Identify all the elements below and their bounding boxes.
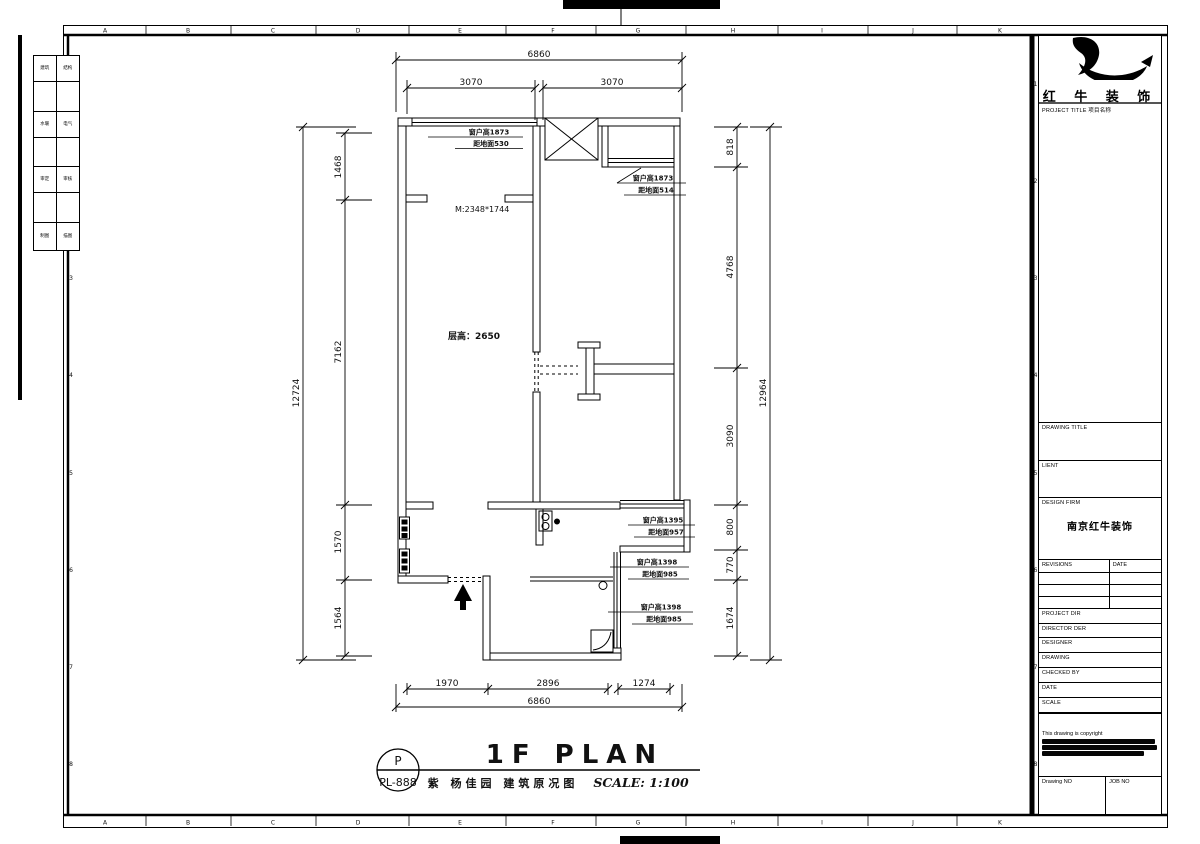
date-row: DATE <box>1039 683 1161 698</box>
drawing-row: DRAWING <box>1039 653 1161 668</box>
row-label: PROJECT DIR <box>1039 609 1161 617</box>
entry-arrow <box>454 584 472 610</box>
strip-cell <box>34 138 57 167</box>
row-label: DATE <box>1039 683 1161 691</box>
date-col-label: DATE <box>1110 560 1161 572</box>
strip-cell <box>34 82 57 111</box>
window-label: 距地面985 <box>642 570 678 579</box>
dim-label: 770 <box>726 556 736 573</box>
dim-label: 2896 <box>537 679 560 689</box>
shaft-box <box>545 118 598 160</box>
strip-cell: 建筑 <box>34 56 57 81</box>
grid-letter: D <box>356 820 361 827</box>
row-label: CHECKED BY <box>1039 668 1161 676</box>
dim-label: 6860 <box>528 697 551 707</box>
dim-label: 818 <box>726 138 736 155</box>
dim-label: 1570 <box>334 530 344 553</box>
grid-number: 3 <box>69 275 73 282</box>
row-label: DRAWING <box>1039 653 1161 661</box>
plan-title-footer: P PL-888 1F PLAN 紫 杨佳园 建筑原况图 SCALE: 1:10… <box>377 740 700 791</box>
signature-strip: 建筑结构 水暖电气 审定审核 制图描图 <box>33 55 80 251</box>
grid-letter: A <box>103 820 108 827</box>
strip-cell: 制图 <box>34 223 57 250</box>
bull-logo-icon <box>1045 36 1155 80</box>
drawing-title-section: DRAWING TITLE <box>1039 423 1161 461</box>
opening-label: M:2348*1744 <box>455 205 509 214</box>
logo-area: 红 牛 装 饰 <box>1039 36 1161 104</box>
sheet-number: PL-888 <box>379 776 417 789</box>
pipe-circle <box>599 582 607 590</box>
strip-cell: 电气 <box>57 112 80 137</box>
copyright-fineprint <box>1042 739 1155 744</box>
copyright-text: This drawing is copyright <box>1042 731 1158 737</box>
job-no-label: JOB NO <box>1106 777 1161 814</box>
grid-number: 7 <box>1034 664 1038 671</box>
grid-letter: I <box>821 820 823 827</box>
dim-label: 12964 <box>759 378 769 407</box>
dim-label: 6860 <box>528 50 551 60</box>
window-label: 窗户高1398 <box>637 558 678 567</box>
project-dir-row: PROJECT DIR <box>1039 609 1161 624</box>
grid-letter: A <box>103 28 108 35</box>
counter-line <box>530 577 613 581</box>
grid-number: 4 <box>69 372 73 379</box>
dimension-labels: 6860 3070 3070 1970 2896 1274 6860 1468 … <box>292 50 769 707</box>
dim-label: 800 <box>726 518 736 535</box>
window-upper-right <box>608 159 674 168</box>
strip-cell <box>57 138 80 167</box>
door-opening-dashed <box>448 352 578 582</box>
dim-label: 1468 <box>334 155 344 178</box>
grid-letter: G <box>636 28 641 35</box>
plan-title: 1F PLAN <box>486 740 664 770</box>
dim-label: 1674 <box>726 606 736 629</box>
grid-letter: I <box>821 28 823 35</box>
bay-window <box>620 501 684 509</box>
window-top <box>412 118 537 126</box>
grid-number: 6 <box>1034 567 1038 574</box>
title-block: 红 牛 装 饰 PROJECT TITLE 项目名称 DRAWING TITLE… <box>1038 35 1162 815</box>
copyright-section: This drawing is copyright <box>1039 713 1161 777</box>
strip-cell: 描图 <box>57 223 80 250</box>
floor-drain <box>555 519 560 524</box>
grid-letter: G <box>636 820 641 827</box>
strip-cell: 审核 <box>57 167 80 192</box>
strip-cell <box>34 193 57 222</box>
dim-label: 1274 <box>633 679 656 689</box>
window-label: 距地面514 <box>638 186 674 195</box>
checked-by-row: CHECKED BY <box>1039 668 1161 683</box>
client-section: LIENT <box>1039 461 1161 498</box>
grid-number: 6 <box>69 567 73 574</box>
dim-label: 1564 <box>334 606 344 629</box>
grid-letter: H <box>731 28 736 35</box>
grid-letter: K <box>998 28 1003 35</box>
grid-number: 3 <box>1034 275 1038 282</box>
row-label: SCALE <box>1039 698 1161 706</box>
grid-letter: B <box>186 820 190 827</box>
revision-row <box>1039 597 1161 608</box>
radiator <box>400 549 410 573</box>
grid-number: 4 <box>1034 372 1038 379</box>
copyright-fineprint <box>1042 751 1144 756</box>
drawing-no-label: Drawing NO <box>1039 777 1106 814</box>
grid-letter: H <box>731 820 736 827</box>
plan-subtitle: 紫 杨佳园 建筑原况图 <box>428 776 579 790</box>
plan-scale: SCALE: 1:100 <box>593 775 689 790</box>
radiator <box>400 517 410 539</box>
strip-cell: 结构 <box>57 56 80 81</box>
window-label: 窗户高1395 <box>643 516 684 525</box>
grid-number: 2 <box>1034 178 1038 185</box>
grid-number: 8 <box>1034 761 1038 768</box>
number-section: Drawing NO JOB NO <box>1039 777 1161 814</box>
grid-letter: C <box>271 28 275 35</box>
project-title-section: PROJECT TITLE 项目名称 <box>1039 104 1161 423</box>
window-lower-right <box>614 552 621 648</box>
strip-cell: 审定 <box>34 167 57 192</box>
dim-label: 1970 <box>436 679 459 689</box>
fold-marks <box>18 0 720 844</box>
row-label: DESIGNER <box>1039 638 1161 646</box>
grid-letter: K <box>998 820 1003 827</box>
dim-label: 7162 <box>334 341 344 364</box>
grid-number: 1 <box>1034 81 1038 88</box>
window-label: 窗户高1873 <box>633 174 674 183</box>
grid-letter: E <box>458 28 462 35</box>
grid-letter: B <box>186 28 190 35</box>
window-label: 距地面985 <box>646 615 682 624</box>
window-label: 窗户高1398 <box>641 603 682 612</box>
grid-letter: J <box>911 28 914 35</box>
design-firm-section: DESIGN FIRM 南京红牛装饰 <box>1039 498 1161 560</box>
dim-label: 4768 <box>726 255 736 278</box>
grid-letter: F <box>551 28 555 35</box>
client-label: LIENT <box>1039 461 1161 469</box>
drawing-title-label: DRAWING TITLE <box>1039 423 1161 431</box>
grid-letter: C <box>271 820 275 827</box>
dim-label: 12724 <box>292 378 302 407</box>
floor-height-label: 层高：2650 <box>448 330 500 342</box>
scale-row: SCALE <box>1039 698 1161 713</box>
revisions-table: REVISIONS DATE <box>1039 560 1161 609</box>
grid-number: 5 <box>69 470 73 477</box>
strip-cell: 水暖 <box>34 112 57 137</box>
director-row: DIRECTOR DER <box>1039 624 1161 639</box>
strip-cell <box>57 82 80 111</box>
copyright-fineprint <box>1042 745 1157 750</box>
window-label: 距地面530 <box>473 139 509 148</box>
project-title-label: PROJECT TITLE 项目名称 <box>1039 104 1161 114</box>
window-label: 距地面957 <box>648 528 684 537</box>
grid-number: 8 <box>69 761 73 768</box>
grid-letter: F <box>551 820 555 827</box>
row-label: DIRECTOR DER <box>1039 624 1161 632</box>
strip-cell <box>57 193 80 222</box>
corner-basin <box>591 630 613 652</box>
grid-number: 7 <box>69 664 73 671</box>
design-firm-name: 南京红牛装饰 <box>1039 518 1161 533</box>
dim-label: 3090 <box>726 424 736 447</box>
drawing-sheet: A B C D E F G H I J K A B C D E F G H I … <box>0 0 1200 844</box>
revisions-label: REVISIONS <box>1039 560 1110 572</box>
window-label: 窗户高1873 <box>469 128 510 137</box>
design-firm-label: DESIGN FIRM <box>1039 498 1161 506</box>
dim-label: 3070 <box>601 78 624 88</box>
grid-number: 5 <box>1034 470 1038 477</box>
sheet-letter: P <box>394 754 401 768</box>
grid-letter: J <box>911 820 914 827</box>
brand-name: 红 牛 装 饰 <box>1039 86 1161 105</box>
revision-row <box>1039 573 1161 585</box>
dim-label: 3070 <box>460 78 483 88</box>
grid-letter: D <box>356 28 361 35</box>
designer-row: DESIGNER <box>1039 638 1161 653</box>
revision-row <box>1039 585 1161 597</box>
grid-letter: E <box>458 820 462 827</box>
